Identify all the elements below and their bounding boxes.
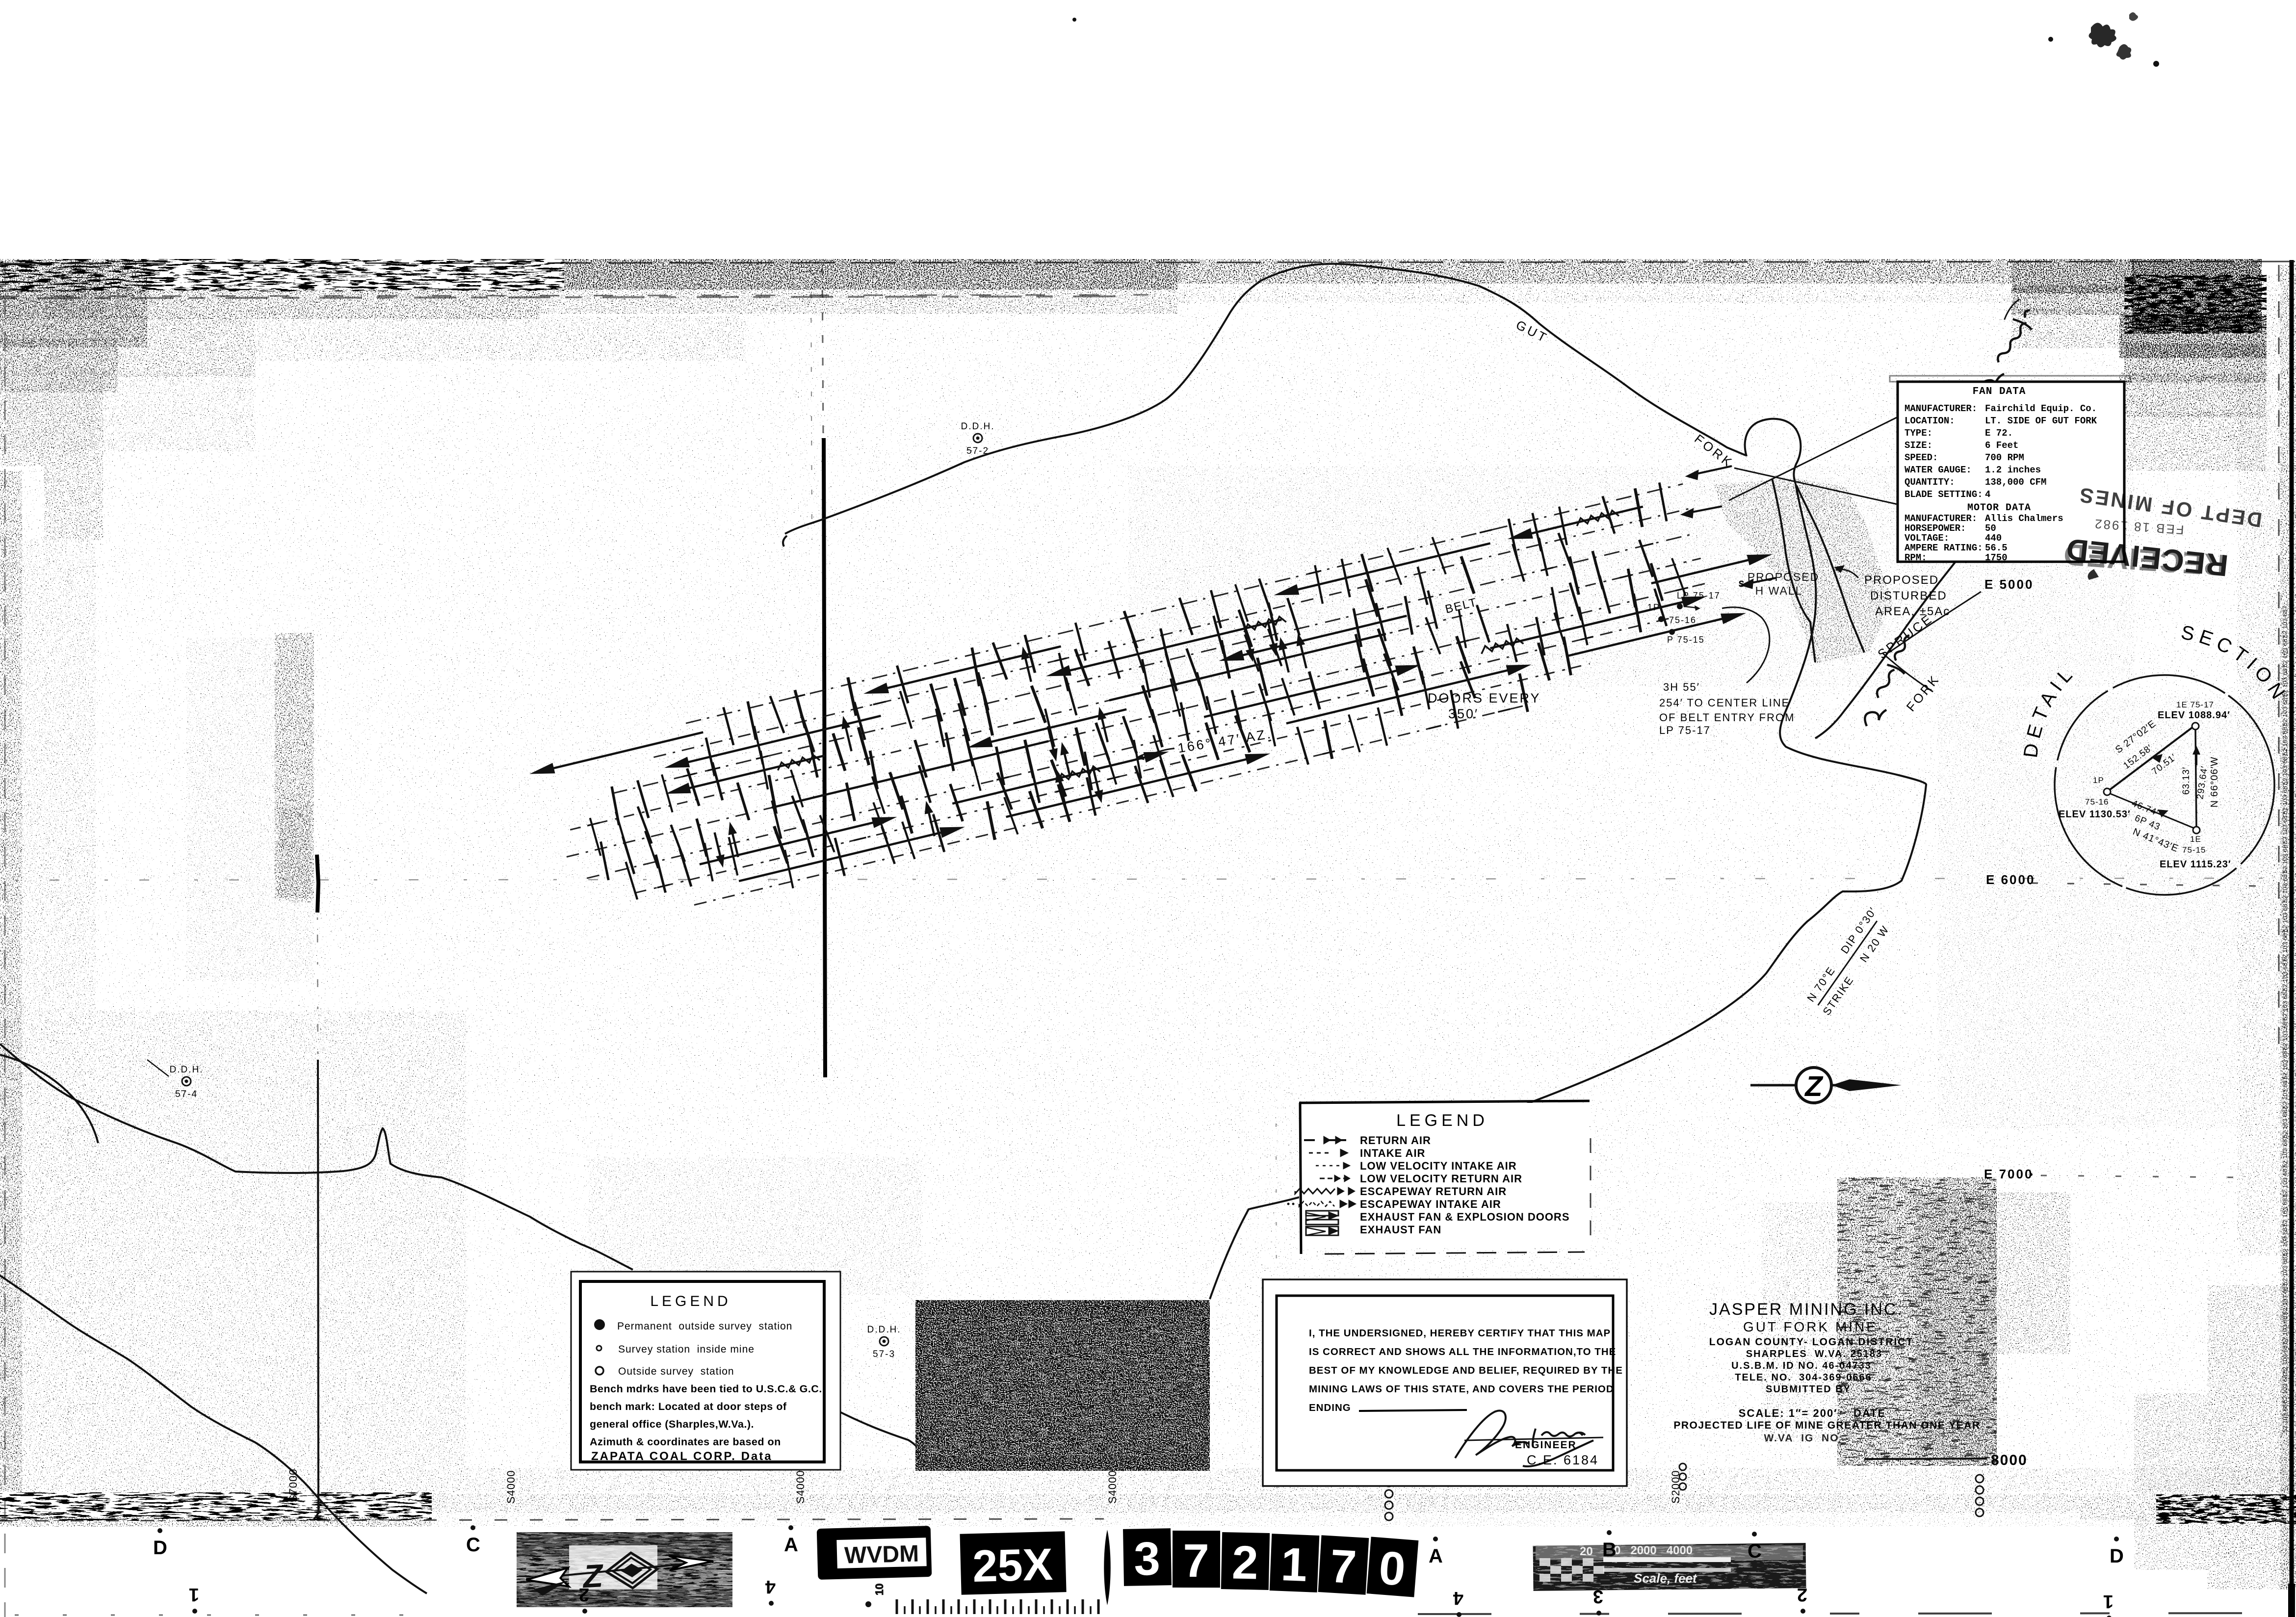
- svg-text:63.13′: 63.13′: [2181, 767, 2192, 795]
- svg-text:RPM:: RPM:: [1905, 552, 1927, 563]
- svg-text:57-3: 57-3: [873, 1349, 895, 1359]
- svg-text:W.VA IG NO: W.VA IG NO: [1764, 1433, 1839, 1444]
- svg-text:LEGEND: LEGEND: [1396, 1111, 1488, 1130]
- svg-text:3H 55′: 3H 55′: [1663, 681, 1700, 693]
- svg-text:S7000: S7000: [287, 1468, 299, 1502]
- svg-text:Outside survey station: Outside survey station: [618, 1366, 734, 1377]
- svg-text:D.D.H.: D.D.H.: [170, 1065, 204, 1075]
- svg-text:52 103 687: 52 103 687: [2281, 606, 2289, 638]
- svg-text:52 103 687: 52 103 687: [2281, 959, 2289, 991]
- svg-text:1E 75-17: 1E 75-17: [2176, 700, 2214, 709]
- svg-text:LP 75-17: LP 75-17: [1677, 591, 1721, 600]
- svg-text:OF BELT ENTRY FROM: OF BELT ENTRY FROM: [1659, 711, 1795, 724]
- svg-text:57-4: 57-4: [175, 1089, 198, 1099]
- svg-text:D: D: [2110, 1545, 2124, 1567]
- svg-text:VOLTAGE:: VOLTAGE:: [1905, 533, 1949, 544]
- svg-text:MANUFACTURER:: MANUFACTURER:: [1905, 513, 1977, 524]
- svg-text:52 103 687: 52 103 687: [2281, 1253, 2289, 1285]
- svg-text:52 103 687: 52 103 687: [2281, 1018, 2289, 1050]
- svg-text:P 75-15: P 75-15: [1667, 635, 1705, 645]
- svg-text:Azimuth & coordinates are ba: Azimuth & coordinates are based on: [590, 1436, 781, 1448]
- svg-text:52 103 687: 52 103 687: [2281, 812, 2289, 844]
- svg-text:LOW VELOCITY RETURN AIR: LOW VELOCITY RETURN AIR: [1360, 1173, 1522, 1185]
- svg-text:LOW VELOCITY INTAKE AIR: LOW VELOCITY INTAKE AIR: [1360, 1160, 1517, 1172]
- svg-text:TYPE:: TYPE:: [1905, 428, 1932, 439]
- svg-text:Fairchild Equip. Co.: Fairchild Equip. Co.: [1985, 403, 2097, 414]
- svg-text:E 72.: E 72.: [1985, 428, 2013, 439]
- svg-text:3: 3: [1593, 1586, 1603, 1607]
- svg-text:4: 4: [765, 1576, 776, 1597]
- svg-text:75-16: 75-16: [2085, 797, 2109, 807]
- svg-text:52 103 687: 52 103 687: [2281, 1224, 2289, 1256]
- svg-text:52 103 687: 52 103 687: [2281, 1371, 2289, 1403]
- svg-text:DISTURBED: DISTURBED: [1870, 589, 1947, 602]
- svg-text:BLADE SETTING:: BLADE SETTING:: [1905, 489, 1983, 500]
- svg-text:IS CORRECT AND SHOWS ALL THE I: IS CORRECT AND SHOWS ALL THE INFORMATION…: [1309, 1346, 1616, 1357]
- svg-text:C.E. 6184: C.E. 6184: [1527, 1453, 1599, 1467]
- svg-text:52 103 687: 52 103 687: [2281, 635, 2289, 667]
- svg-text:SUBMITTED BY: SUBMITTED BY: [1766, 1384, 1851, 1395]
- svg-text:S4000: S4000: [794, 1470, 807, 1504]
- svg-text:AREA, ±5Ac: AREA, ±5Ac: [1875, 605, 1950, 618]
- svg-text:EXHAUST FAN: EXHAUST FAN: [1360, 1224, 1441, 1236]
- svg-text:75-16: 75-16: [1669, 615, 1696, 625]
- svg-text:SHARPLES W.VA. 25183: SHARPLES W.VA. 25183: [1746, 1349, 1882, 1359]
- svg-text:56.5: 56.5: [1985, 543, 2008, 553]
- svg-text:LEGEND: LEGEND: [650, 1293, 731, 1309]
- svg-text:52 103 687: 52 103 687: [2281, 1342, 2289, 1374]
- svg-text:1E: 1E: [2190, 835, 2201, 844]
- svg-text:PROJECTED LIFE OF MINE GREATER: PROJECTED LIFE OF MINE GREATER THAN ONE …: [1673, 1420, 1980, 1431]
- svg-text:bench mark: Located at door s: bench mark: Located at door steps of: [590, 1401, 787, 1412]
- svg-text:B: B: [1602, 1539, 1617, 1561]
- svg-text:GUT FORK MINE: GUT FORK MINE: [1743, 1319, 1878, 1334]
- svg-text:S4000: S4000: [505, 1470, 517, 1504]
- svg-text:PROPOSED: PROPOSED: [1864, 574, 1939, 587]
- svg-text:ELEV 1115.23′: ELEV 1115.23′: [2160, 859, 2231, 870]
- svg-text:138,000 CFM: 138,000 CFM: [1985, 477, 2046, 488]
- svg-text:50: 50: [1985, 523, 1996, 534]
- svg-text:1: 1: [189, 1584, 199, 1605]
- svg-text:C: C: [466, 1534, 480, 1556]
- svg-text:MOTOR DATA: MOTOR DATA: [1967, 502, 2031, 514]
- svg-text:AMPERE RATING:: AMPERE RATING:: [1905, 543, 1983, 553]
- svg-text:52 103 687: 52 103 687: [2281, 1195, 2289, 1226]
- svg-text:Z: Z: [1804, 1070, 1824, 1102]
- svg-text:A: A: [1429, 1545, 1443, 1567]
- svg-text:52 103 687: 52 103 687: [2281, 782, 2289, 814]
- svg-text:52 103 687: 52 103 687: [2281, 841, 2289, 873]
- svg-text:MINING LAWS OF THIS STATE, AND: MINING LAWS OF THIS STATE, AND COVERS TH…: [1309, 1383, 1614, 1395]
- svg-text:QUANTITY:: QUANTITY:: [1905, 477, 1955, 488]
- svg-text:ZAPATA COAL CORP. Data: ZAPATA COAL CORP. Data: [591, 1450, 773, 1463]
- svg-text:52 103 687: 52 103 687: [2281, 1283, 2289, 1315]
- svg-text:LP 75-17: LP 75-17: [1659, 724, 1711, 736]
- svg-text:LOGAN COUNTY- LOGAN DISTRICT: LOGAN COUNTY- LOGAN DISTRICT: [1709, 1336, 1914, 1348]
- svg-text:52 103 687: 52 103 687: [2281, 724, 2289, 756]
- svg-text:U.S.B.M. ID NO. 46-04733: U.S.B.M. ID NO. 46-04733: [1731, 1360, 1872, 1371]
- svg-text:1: 1: [1280, 1538, 1308, 1591]
- svg-text:ENDING: ENDING: [1309, 1402, 1351, 1413]
- svg-text:2: 2: [579, 1584, 589, 1605]
- svg-text:52 103 687: 52 103 687: [2281, 694, 2289, 726]
- svg-text:52 103 687: 52 103 687: [2281, 1165, 2289, 1197]
- svg-text:254′ TO CENTER LINE: 254′ TO CENTER LINE: [1659, 697, 1790, 709]
- svg-text:ELEV 1088.94′: ELEV 1088.94′: [2158, 710, 2230, 721]
- svg-text:ESCAPEWAY RETURN AIR: ESCAPEWAY RETURN AIR: [1360, 1185, 1507, 1198]
- svg-text:20: 20: [1580, 1545, 1593, 1558]
- svg-text:EXHAUST FAN & EXPLOSION DOORS: EXHAUST FAN & EXPLOSION DOORS: [1360, 1211, 1570, 1223]
- svg-text:52 103 687: 52 103 687: [2281, 1047, 2289, 1079]
- svg-text:1.2 inches: 1.2 inches: [1985, 465, 2041, 475]
- svg-text:MANUFACTURER:: MANUFACTURER:: [1905, 403, 1977, 414]
- svg-text:700 RPM: 700 RPM: [1985, 452, 2024, 463]
- svg-text:SIZE:: SIZE:: [1905, 440, 1932, 451]
- svg-text:7: 7: [1329, 1540, 1358, 1594]
- svg-text:ESCAPEWAY INTAKE AIR: ESCAPEWAY INTAKE AIR: [1360, 1198, 1501, 1210]
- svg-text:Permanent outside survey sta: Permanent outside survey station: [617, 1321, 792, 1332]
- svg-text:A: A: [784, 1534, 798, 1556]
- svg-text:E 7000: E 7000: [1984, 1167, 2033, 1181]
- svg-text:1P: 1P: [2093, 776, 2104, 785]
- svg-text:D.D.H.: D.D.H.: [867, 1325, 901, 1335]
- svg-text:E 5000: E 5000: [1984, 577, 2034, 592]
- svg-text:1750: 1750: [1985, 552, 2008, 563]
- svg-text:WVDM: WVDM: [844, 1541, 919, 1569]
- svg-text:I, THE UNDERSIGNED, HEREBY CER: I, THE UNDERSIGNED, HEREBY CERTIFY THAT …: [1309, 1328, 1611, 1339]
- svg-text:0 2000 4000: 0 2000 4000: [1614, 1544, 1693, 1557]
- svg-text:s: s: [1739, 577, 1744, 589]
- svg-text:N 66°06′W: N 66°06′W: [2209, 756, 2220, 808]
- svg-text:1P: 1P: [1647, 602, 1660, 612]
- svg-text:350′: 350′: [1448, 706, 1479, 721]
- svg-text:SPEED:: SPEED:: [1905, 452, 1938, 463]
- svg-text:H WALL: H WALL: [1755, 584, 1803, 597]
- svg-text:DOORS EVERY: DOORS EVERY: [1428, 691, 1541, 705]
- svg-text:4: 4: [1453, 1588, 1463, 1608]
- svg-text:52 103 687: 52 103 687: [2281, 989, 2289, 1020]
- svg-text:52 103 687: 52 103 687: [2281, 665, 2289, 697]
- svg-text:Scale, feet: Scale, feet: [1634, 1571, 1697, 1586]
- svg-text:S4000: S4000: [1106, 1470, 1119, 1504]
- svg-text:TELE. NO. 304-369-0666: TELE. NO. 304-369-0666: [1735, 1372, 1872, 1383]
- svg-text:LT. SIDE OF GUT FORK: LT. SIDE OF GUT FORK: [1985, 416, 2097, 426]
- svg-text:Bench mdrks have been tied to: Bench mdrks have been tied to U.S.C.& G.…: [590, 1383, 822, 1395]
- svg-text:8000: 8000: [1991, 1452, 2028, 1468]
- svg-text:52 103 687: 52 103 687: [2281, 753, 2289, 785]
- svg-text:ELEV 1130.53′: ELEV 1130.53′: [2059, 809, 2131, 820]
- svg-text:Allis Chalmers: Allis Chalmers: [1985, 513, 2063, 524]
- svg-text:3: 3: [1133, 1533, 1160, 1586]
- svg-text:52 103 687: 52 103 687: [2281, 1401, 2289, 1433]
- svg-text:WATER GAUGE:: WATER GAUGE:: [1905, 465, 1972, 475]
- svg-text:D.D.H.: D.D.H.: [961, 421, 995, 432]
- svg-text:52 103 687: 52 103 687: [2281, 1312, 2289, 1344]
- svg-text:RETURN AIR: RETURN AIR: [1360, 1134, 1431, 1147]
- svg-text:4: 4: [1985, 489, 1990, 500]
- svg-text:52 103 687: 52 103 687: [2281, 1077, 2289, 1109]
- svg-text:BEST OF MY KNOWLEDGE AND BELIE: BEST OF MY KNOWLEDGE AND BELIEF, REQUIRE…: [1309, 1365, 1623, 1376]
- svg-text:57-2: 57-2: [966, 446, 989, 456]
- svg-text:ENGINEER: ENGINEER: [1515, 1439, 1577, 1451]
- svg-text:6 Feet: 6 Feet: [1985, 440, 2018, 451]
- svg-text:25X: 25X: [972, 1539, 1053, 1591]
- svg-text:FAN DATA: FAN DATA: [1973, 386, 2026, 397]
- svg-text:52 103 687: 52 103 687: [2281, 900, 2289, 932]
- svg-text:52 103 687: 52 103 687: [2281, 1136, 2289, 1168]
- svg-text:E 6000: E 6000: [1986, 872, 2035, 887]
- svg-text:INTAKE AIR: INTAKE AIR: [1360, 1147, 1425, 1159]
- svg-text:general office (Sharples,W.Va: general office (Sharples,W.Va.).: [590, 1418, 754, 1430]
- svg-text:1: 1: [2103, 1591, 2113, 1612]
- svg-text:52 103 687: 52 103 687: [2281, 871, 2289, 903]
- svg-text:SCALE: 1″= 200′ DATE: SCALE: 1″= 200′ DATE: [1739, 1407, 1886, 1419]
- svg-text:75-15: 75-15: [2182, 845, 2206, 855]
- svg-text:52 103 687: 52 103 687: [2281, 930, 2289, 962]
- svg-text:2: 2: [1231, 1536, 1259, 1589]
- svg-text:HORSEPOWER:: HORSEPOWER:: [1905, 523, 1966, 534]
- svg-text:440: 440: [1985, 533, 2002, 544]
- svg-text:Survey station inside mine: Survey station inside mine: [618, 1344, 755, 1355]
- svg-text:D: D: [153, 1537, 167, 1559]
- svg-text:PROPOSED: PROPOSED: [1748, 571, 1819, 583]
- svg-text:C: C: [1748, 1540, 1762, 1562]
- svg-text:LOCATION:: LOCATION:: [1905, 416, 1955, 426]
- svg-text:52 103 687: 52 103 687: [2281, 1106, 2289, 1138]
- svg-text:10: 10: [873, 1584, 886, 1595]
- svg-text:2: 2: [1797, 1584, 1807, 1605]
- svg-text:7: 7: [1183, 1535, 1209, 1587]
- svg-text:JASPER MINING INC.: JASPER MINING INC.: [1709, 1300, 1904, 1319]
- svg-text:0: 0: [1377, 1541, 1408, 1596]
